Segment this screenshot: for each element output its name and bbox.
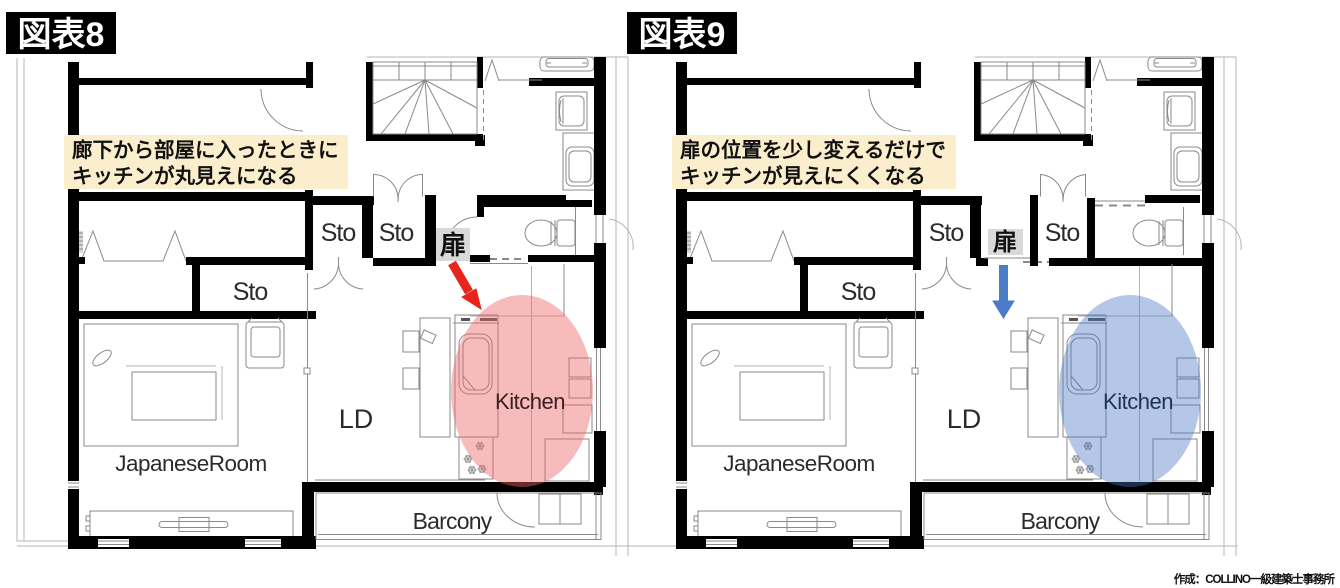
svg-text:扉: 扉	[440, 230, 466, 260]
svg-text:JapaneseRoom: JapaneseRoom	[115, 451, 267, 476]
svg-text:扉: 扉	[993, 228, 1017, 256]
svg-text:キッチンが見えにくくなる: キッチンが見えにくくなる	[680, 164, 926, 188]
svg-text:Sto: Sto	[321, 219, 356, 247]
svg-text:扉の位置を少し変えるだけで: 扉の位置を少し変えるだけで	[680, 138, 946, 162]
svg-text:作成：COLLINO一級建築士事務所: 作成：COLLINO一級建築士事務所	[1174, 572, 1336, 586]
svg-text:Barcony: Barcony	[413, 508, 493, 534]
svg-text:Sto: Sto	[929, 219, 964, 247]
svg-text:Barcony: Barcony	[1021, 508, 1101, 534]
svg-text:Kitchen: Kitchen	[495, 389, 565, 414]
svg-text:Sto: Sto	[379, 219, 414, 247]
svg-text:図表9: 図表9	[639, 16, 726, 54]
svg-text:図表8: 図表8	[18, 16, 105, 54]
svg-text:Sto: Sto	[233, 278, 268, 306]
svg-text:JapaneseRoom: JapaneseRoom	[723, 451, 875, 476]
svg-text:Sto: Sto	[841, 278, 876, 306]
svg-text:キッチンが丸見えになる: キッチンが丸見えになる	[72, 164, 298, 188]
svg-text:廊下から部屋に入ったときに: 廊下から部屋に入ったときに	[72, 138, 339, 162]
svg-text:Kitchen: Kitchen	[1103, 389, 1173, 414]
svg-text:Sto: Sto	[1045, 219, 1080, 247]
svg-text:LD: LD	[339, 404, 374, 434]
svg-text:LD: LD	[947, 404, 982, 434]
